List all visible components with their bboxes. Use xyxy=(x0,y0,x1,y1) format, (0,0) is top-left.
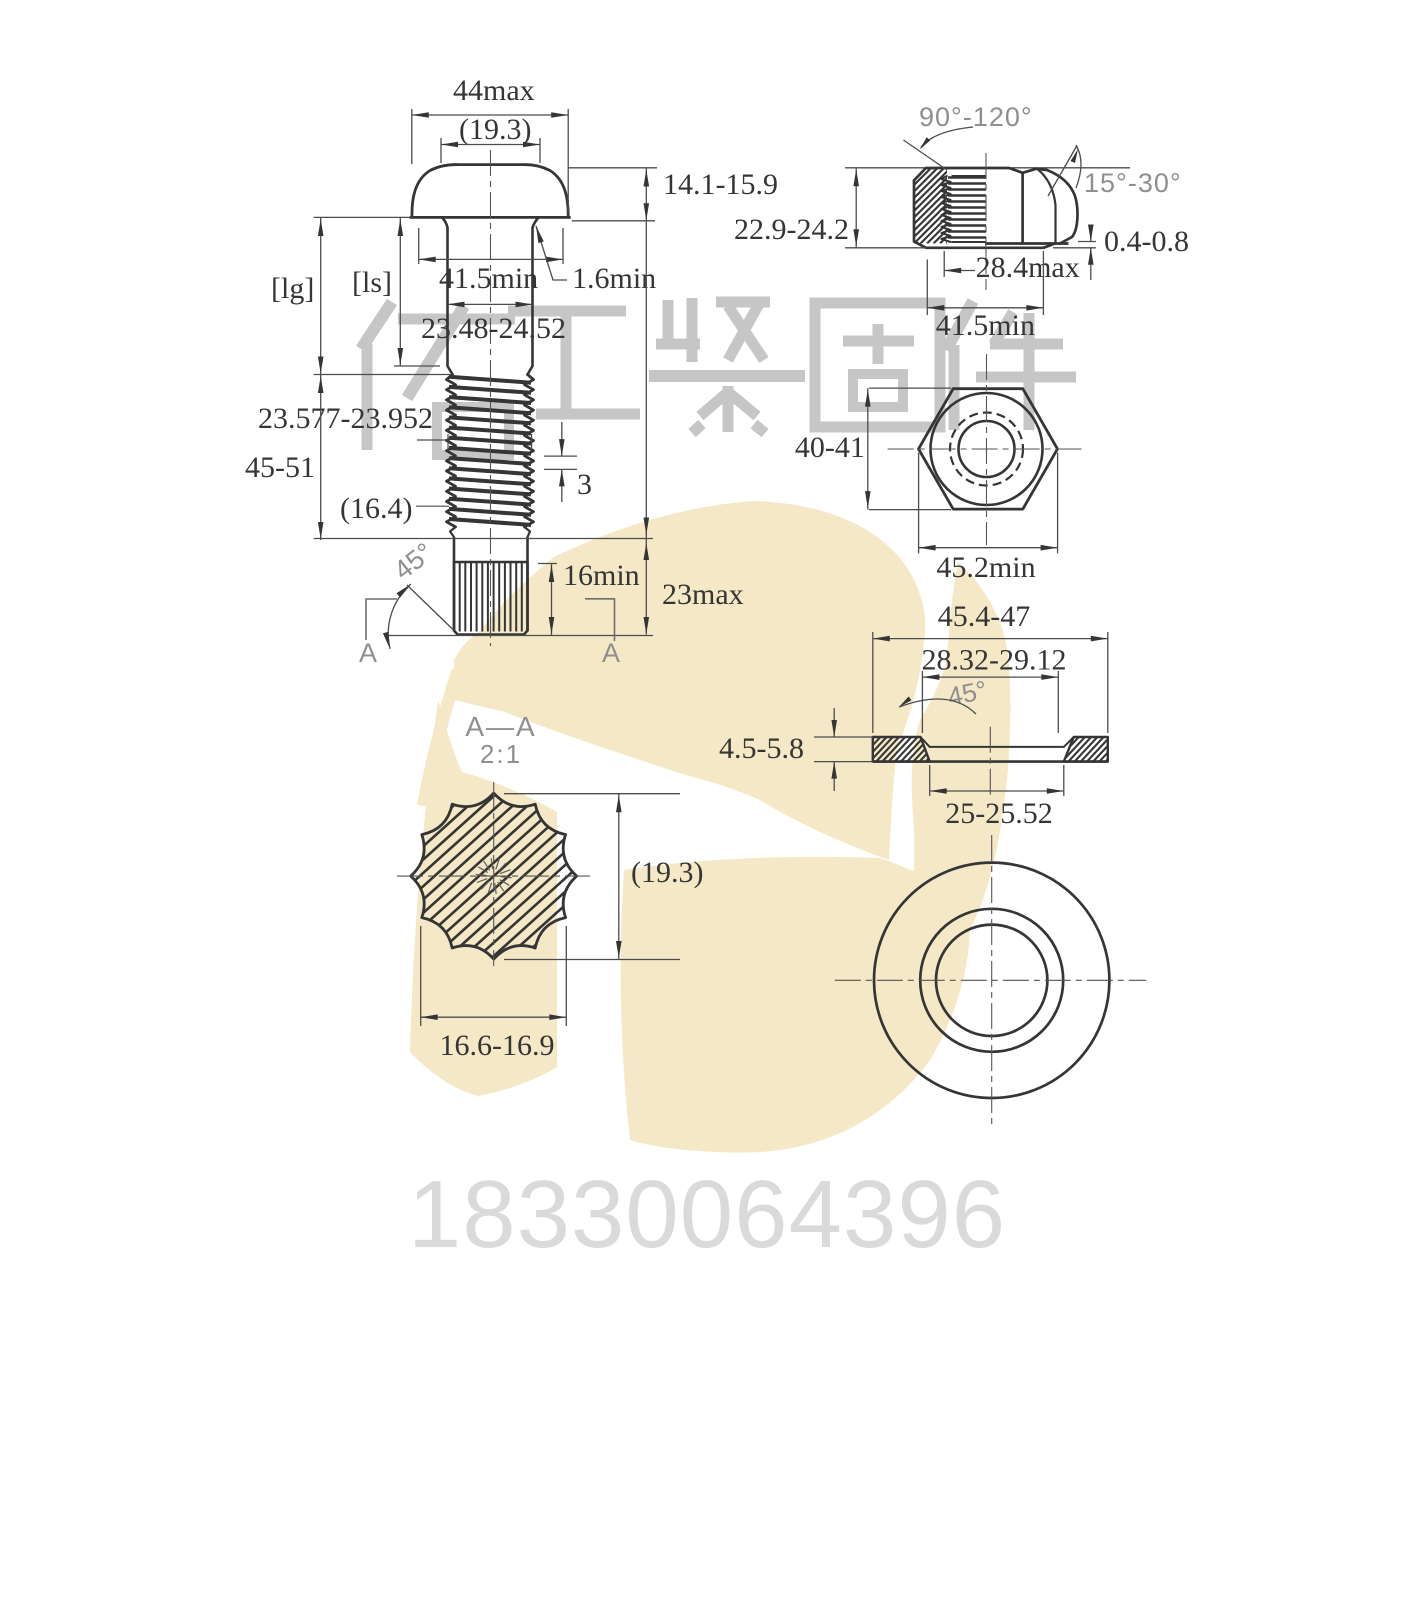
svg-text:A: A xyxy=(602,638,620,668)
svg-text:45.4-47: 45.4-47 xyxy=(938,600,1031,633)
svg-text:25-25.52: 25-25.52 xyxy=(945,797,1053,830)
svg-text:(16.4): (16.4) xyxy=(340,492,412,525)
svg-text:41.5min: 41.5min xyxy=(936,309,1035,342)
svg-text:(19.3): (19.3) xyxy=(459,113,531,146)
svg-text:1.6min: 1.6min xyxy=(572,262,656,295)
svg-text:23.48-24.52: 23.48-24.52 xyxy=(421,312,566,345)
svg-text:44max: 44max xyxy=(453,74,535,107)
svg-text:22.9-24.2: 22.9-24.2 xyxy=(734,213,849,246)
svg-text:4.5-5.8: 4.5-5.8 xyxy=(719,732,804,765)
svg-text:41.5min: 41.5min xyxy=(439,262,538,295)
svg-text:A: A xyxy=(359,638,377,668)
svg-text:23max: 23max xyxy=(662,578,744,611)
svg-text:[lg]: [lg] xyxy=(271,272,314,305)
svg-text:15°-30°: 15°-30° xyxy=(1084,168,1182,198)
svg-text:A—A: A—A xyxy=(465,711,536,742)
svg-text:14.1-15.9: 14.1-15.9 xyxy=(663,168,778,201)
svg-text:90°-120°: 90°-120° xyxy=(919,102,1033,132)
svg-text:16min: 16min xyxy=(563,559,640,592)
svg-text:16.6-16.9: 16.6-16.9 xyxy=(440,1029,555,1062)
svg-text:40-41: 40-41 xyxy=(795,431,865,464)
svg-text:45.2min: 45.2min xyxy=(936,551,1035,584)
svg-text:28.4max: 28.4max xyxy=(976,251,1080,284)
svg-text:(19.3): (19.3) xyxy=(631,856,703,889)
svg-text:2:1: 2:1 xyxy=(480,739,522,769)
svg-text:0.4-0.8: 0.4-0.8 xyxy=(1104,225,1189,258)
svg-text:18330064396: 18330064396 xyxy=(408,1161,1006,1268)
svg-text:[ls]: [ls] xyxy=(352,266,392,299)
svg-text:3: 3 xyxy=(577,468,592,501)
svg-text:23.577-23.952: 23.577-23.952 xyxy=(258,402,433,435)
svg-text:45-51: 45-51 xyxy=(245,451,315,484)
svg-text:28.32-29.12: 28.32-29.12 xyxy=(922,644,1067,677)
